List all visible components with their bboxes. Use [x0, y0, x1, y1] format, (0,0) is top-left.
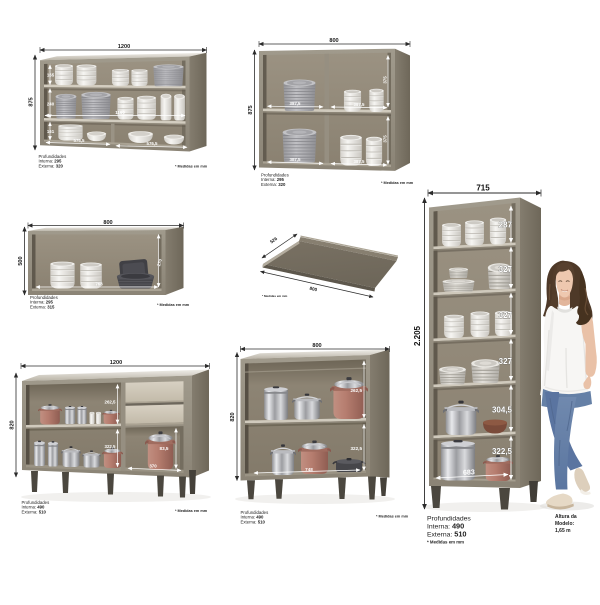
svg-text:1,65 m: 1,65 m — [555, 528, 571, 534]
svg-text:165: 165 — [47, 73, 55, 78]
svg-text:875: 875 — [248, 105, 254, 114]
svg-text:800: 800 — [329, 38, 338, 44]
svg-text:Externa: 320: Externa: 320 — [261, 182, 286, 187]
svg-text:387,5: 387,5 — [290, 157, 302, 162]
svg-text:370: 370 — [149, 464, 157, 469]
svg-text:322,5: 322,5 — [492, 447, 513, 456]
svg-text:* Medidas em mm: * Medidas em mm — [175, 509, 208, 513]
svg-text:* Medidas em mm: * Medidas em mm — [376, 515, 409, 519]
svg-text:1200: 1200 — [118, 44, 130, 50]
svg-text:768: 768 — [95, 282, 103, 287]
svg-text:683: 683 — [463, 469, 475, 477]
svg-text:387,5: 387,5 — [354, 102, 366, 107]
svg-text:Modelo:: Modelo: — [555, 521, 574, 527]
svg-text:500: 500 — [18, 256, 24, 265]
svg-text:Externa: 315: Externa: 315 — [30, 304, 55, 309]
svg-text:* Medidas em mm: * Medidas em mm — [262, 294, 288, 298]
svg-text:2.205: 2.205 — [413, 325, 422, 346]
svg-text:1160: 1160 — [115, 110, 125, 115]
svg-text:304,5: 304,5 — [492, 406, 513, 415]
svg-text:576,5: 576,5 — [74, 138, 86, 143]
svg-text:715: 715 — [476, 184, 490, 193]
svg-text:Externa: 510: Externa: 510 — [427, 530, 467, 539]
svg-text:322,5: 322,5 — [105, 444, 117, 449]
svg-text:* Medidas em mm: * Medidas em mm — [175, 165, 208, 169]
svg-text:327: 327 — [499, 265, 513, 274]
svg-text:* Medidas em mm: * Medidas em mm — [427, 539, 464, 544]
svg-text:Altura da: Altura da — [555, 514, 577, 520]
svg-text:1200: 1200 — [110, 360, 122, 366]
svg-text:240: 240 — [47, 102, 55, 107]
svg-text:800: 800 — [103, 220, 112, 226]
svg-text:800: 800 — [312, 343, 321, 349]
svg-text:* Medidas em mm: * Medidas em mm — [157, 303, 190, 307]
svg-text:748: 748 — [305, 467, 313, 472]
svg-text:Externa: 510: Externa: 510 — [241, 519, 266, 524]
svg-text:262,5: 262,5 — [351, 388, 363, 393]
svg-text:* Medidas em mm: * Medidas em mm — [381, 181, 414, 185]
svg-text:576,5: 576,5 — [147, 141, 159, 146]
svg-text:287: 287 — [499, 221, 513, 230]
svg-text:387,5: 387,5 — [354, 159, 366, 164]
svg-text:327: 327 — [499, 311, 513, 320]
svg-text:875: 875 — [29, 97, 35, 106]
svg-text:262,5: 262,5 — [105, 400, 117, 405]
svg-text:327: 327 — [499, 357, 513, 366]
svg-text:Externa: 510: Externa: 510 — [22, 509, 47, 514]
svg-text:161: 161 — [47, 129, 55, 134]
svg-text:387,5: 387,5 — [290, 101, 302, 106]
svg-text:Externa: 320: Externa: 320 — [39, 163, 64, 168]
svg-text:820: 820 — [230, 412, 236, 421]
svg-text:83,5: 83,5 — [160, 446, 169, 451]
svg-text:375: 375 — [382, 76, 387, 84]
svg-text:375: 375 — [382, 135, 387, 143]
svg-text:Profundidades: Profundidades — [427, 516, 471, 523]
svg-text:322,5: 322,5 — [351, 446, 363, 451]
svg-text:820: 820 — [10, 420, 16, 429]
